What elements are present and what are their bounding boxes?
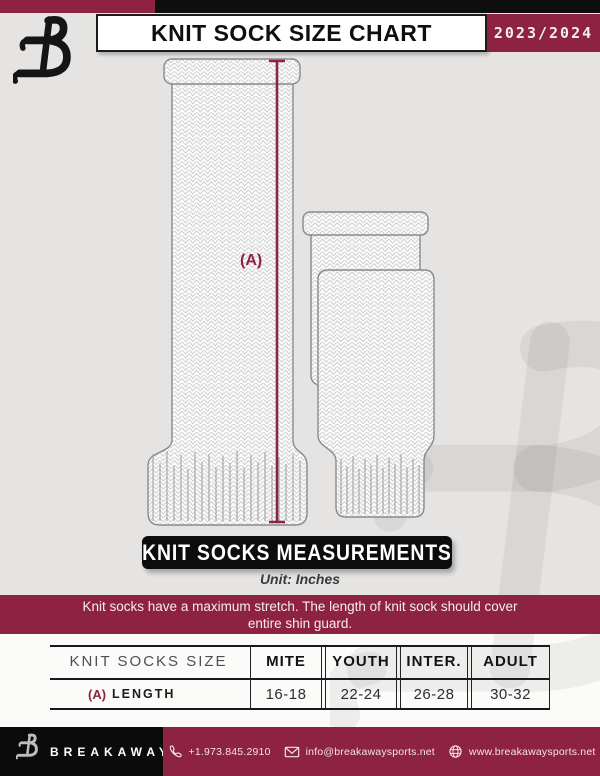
table-rule-top	[50, 645, 550, 647]
row-label-text: LENGTH	[112, 687, 175, 701]
breakaway-b-logo-icon	[13, 15, 79, 106]
length-value-inter: 26-28	[400, 678, 468, 710]
table-header-row: KNIT SOCKS SIZE MITE YOUTH INTER. ADULT	[50, 645, 550, 678]
large-sock-illustration	[148, 59, 307, 525]
footer-brand-block: BREAKAWAY	[0, 727, 163, 776]
measurements-banner-label: KNIT SOCKS MEASUREMENTS	[142, 540, 452, 566]
column-header-inter: INTER.	[400, 645, 468, 678]
measurements-banner: KNIT SOCKS MEASUREMENTS	[142, 536, 452, 569]
phone-contact[interactable]: +1.973.845.2910	[168, 744, 271, 759]
unit-note: Unit: Inches	[0, 571, 600, 587]
row-label-prefix: (A)	[88, 687, 106, 702]
footer: BREAKAWAY +1.973.845.2910 info@breakaway…	[0, 727, 600, 776]
measure-label-a: (A)	[240, 252, 262, 270]
table-rule-middle	[50, 678, 550, 680]
length-value-mite: 16-18	[250, 678, 322, 710]
email-contact[interactable]: info@breakawaysports.net	[284, 745, 435, 759]
phone-icon	[168, 744, 183, 759]
table-row-length: (A) LENGTH 16-18 22-24 26-28 30-32	[50, 678, 550, 710]
brand-name: BREAKAWAY	[50, 745, 172, 759]
notice-line-2: entire shin guard.	[248, 615, 352, 632]
stretch-notice-band: Knit socks have a maximum stretch. The l…	[0, 595, 600, 634]
envelope-icon	[284, 745, 300, 759]
website-url: www.breakawaysports.net	[469, 746, 596, 758]
row-label-length: (A) LENGTH	[50, 678, 247, 710]
notice-line-1: Knit socks have a maximum stretch. The l…	[83, 598, 518, 615]
phone-number: +1.973.845.2910	[189, 746, 271, 758]
season-label: 2023/2024	[494, 24, 593, 42]
page-title: KNIT SOCK SIZE CHART	[151, 20, 432, 47]
column-header-mite: MITE	[250, 645, 322, 678]
column-header-youth: YOUTH	[325, 645, 397, 678]
size-table: KNIT SOCKS SIZE MITE YOUTH INTER. ADULT …	[50, 645, 550, 710]
footer-b-logo-icon	[16, 733, 41, 771]
small-sock-illustration	[318, 270, 434, 517]
season-badge: 2023/2024	[487, 14, 600, 52]
email-address: info@breakawaysports.net	[306, 746, 435, 758]
globe-icon	[448, 744, 463, 759]
column-header-size: KNIT SOCKS SIZE	[50, 645, 247, 678]
table-rule-bottom	[50, 708, 550, 710]
knit-sock-diagram	[130, 55, 460, 540]
size-chart-page: KNIT SOCK SIZE CHART 2023/2024	[0, 0, 600, 776]
top-accent-bar-maroon	[0, 0, 155, 13]
length-value-adult: 30-32	[471, 678, 550, 710]
column-header-adult: ADULT	[471, 645, 550, 678]
website-contact[interactable]: www.breakawaysports.net	[448, 744, 596, 759]
top-accent-bar-black	[155, 0, 600, 13]
length-value-youth: 22-24	[325, 678, 397, 710]
page-title-box: KNIT SOCK SIZE CHART	[96, 14, 487, 52]
footer-contact-strip: +1.973.845.2910 info@breakawaysports.net…	[163, 727, 600, 776]
